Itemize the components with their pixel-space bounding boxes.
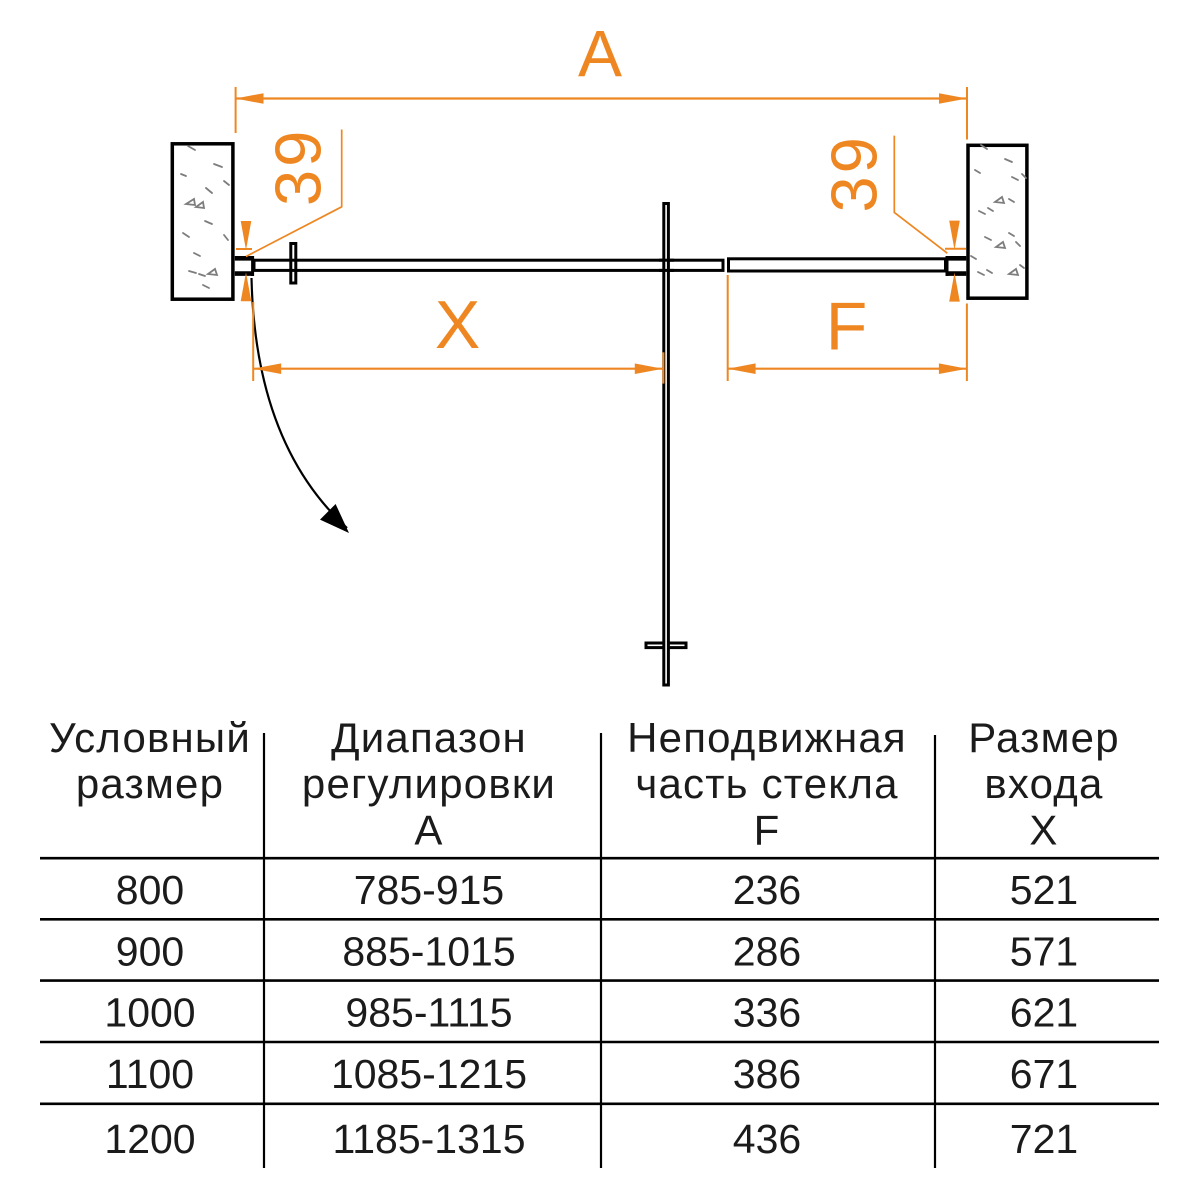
svg-text:1100: 1100 — [106, 1051, 194, 1097]
svg-text:800: 800 — [116, 867, 184, 913]
svg-text:Размер: Размер — [968, 714, 1120, 761]
svg-text:часть стекла: часть стекла — [635, 760, 898, 807]
svg-text:885-1015: 885-1015 — [342, 928, 515, 974]
svg-text:1185-1315: 1185-1315 — [332, 1116, 525, 1162]
svg-text:236: 236 — [733, 867, 801, 913]
svg-text:39: 39 — [817, 134, 890, 212]
svg-text:F: F — [754, 807, 781, 854]
svg-text:521: 521 — [1010, 867, 1078, 913]
svg-text:436: 436 — [733, 1116, 801, 1162]
svg-text:985-1115: 985-1115 — [345, 990, 512, 1036]
svg-text:621: 621 — [1010, 990, 1078, 1036]
svg-text:39: 39 — [262, 128, 335, 206]
svg-text:671: 671 — [1010, 1051, 1078, 1097]
svg-text:1200: 1200 — [104, 1116, 195, 1162]
svg-text:Диапазон: Диапазон — [331, 714, 527, 761]
svg-text:А: А — [414, 807, 443, 854]
svg-text:A: A — [578, 17, 622, 91]
svg-text:входа: входа — [984, 760, 1103, 807]
svg-text:286: 286 — [733, 928, 801, 974]
svg-text:900: 900 — [116, 928, 184, 974]
svg-text:721: 721 — [1010, 1116, 1078, 1162]
svg-text:1000: 1000 — [104, 990, 195, 1036]
svg-text:регулировки: регулировки — [302, 760, 556, 807]
svg-text:F: F — [826, 289, 868, 365]
svg-text:размер: размер — [76, 760, 224, 807]
svg-text:X: X — [435, 287, 480, 363]
svg-text:Условный: Условный — [49, 714, 251, 761]
svg-text:336: 336 — [733, 990, 801, 1036]
svg-text:571: 571 — [1010, 928, 1078, 974]
svg-text:1085-1215: 1085-1215 — [331, 1051, 527, 1097]
svg-text:785-915: 785-915 — [354, 867, 504, 913]
svg-text:386: 386 — [733, 1051, 801, 1097]
svg-text:Х: Х — [1029, 807, 1058, 854]
svg-text:Неподвижная: Неподвижная — [627, 714, 907, 761]
